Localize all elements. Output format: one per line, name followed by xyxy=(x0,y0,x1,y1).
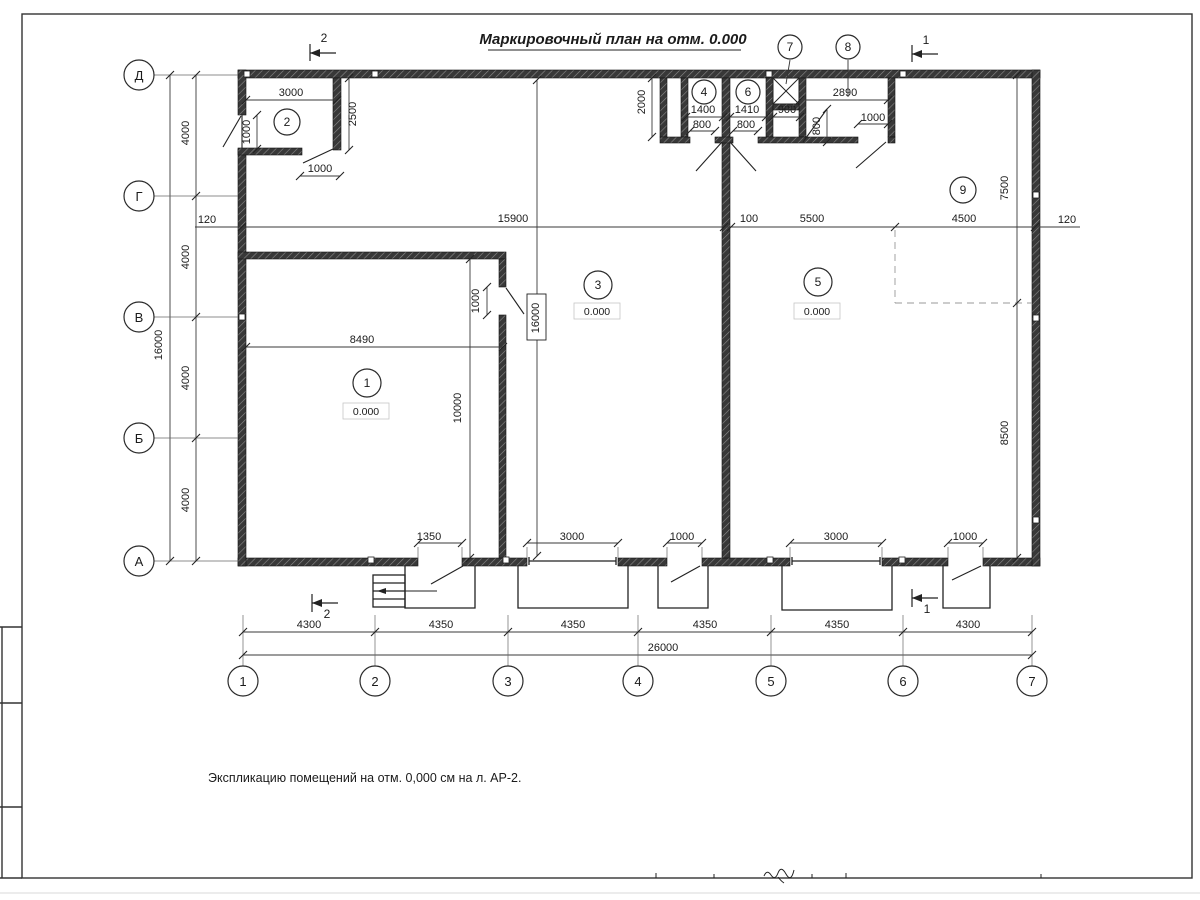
floor-plan-drawing: Маркировочный план на отм. 0.000 xyxy=(0,0,1200,900)
row-axis-label: В xyxy=(135,310,144,325)
section-number: 2 xyxy=(324,607,331,621)
section-mark-2-top: 2 xyxy=(310,31,336,61)
door-room4 xyxy=(696,142,722,171)
dim-label: 10000 xyxy=(452,393,464,424)
dim-label: 4350 xyxy=(429,619,453,631)
room-number: 5 xyxy=(815,275,822,289)
door-entry-1350 xyxy=(431,566,463,584)
dim-label: 1000 xyxy=(953,531,977,543)
door-room6 xyxy=(730,142,756,171)
room-number: 9 xyxy=(960,183,967,197)
room-number: 6 xyxy=(745,85,752,99)
dim-label: 4000 xyxy=(180,488,192,512)
dim-label: 2500 xyxy=(347,102,359,126)
section-number: 1 xyxy=(924,602,931,616)
row-axis-label: Д xyxy=(135,68,144,83)
dim-label: 4350 xyxy=(561,619,585,631)
dim-label: 1000 xyxy=(470,289,482,313)
section-mark-1-bottom: 1 xyxy=(912,589,938,616)
walls xyxy=(238,70,1040,566)
room-number: 2 xyxy=(284,115,291,129)
room-number: 7 xyxy=(787,40,794,54)
room-number: 8 xyxy=(845,40,852,54)
wall-room2-right xyxy=(333,78,341,150)
wall-room1-top xyxy=(238,252,506,259)
wall-topblock-bottom-seg xyxy=(660,137,690,143)
dimension-labels: 3000 1000 2890 1400 1410 900 800 800 100… xyxy=(153,87,1076,654)
dim-label: 15900 xyxy=(498,213,529,225)
wall-topblock-bottom-seg xyxy=(758,137,858,143)
wall-room1-right-seg xyxy=(499,315,506,558)
door-room2-interior xyxy=(303,149,333,163)
room-number: 1 xyxy=(364,376,371,390)
section-mark-2-bottom: 2 xyxy=(312,594,338,621)
dim-label: 1350 xyxy=(417,531,441,543)
room-number: 4 xyxy=(701,85,708,99)
dim-label: 100 xyxy=(740,213,758,225)
dim-label: 800 xyxy=(693,119,711,131)
wall-topblock-bottom-seg xyxy=(888,137,895,143)
wall-tie-marks xyxy=(239,71,1039,563)
boxed-dimension: 16000 xyxy=(527,294,546,340)
door-entry-right xyxy=(952,566,981,580)
porches xyxy=(405,566,990,610)
wall-room6-right xyxy=(766,78,773,137)
wall-room2-bottom xyxy=(238,148,302,155)
dim-label: 1410 xyxy=(735,104,759,116)
signature-marks xyxy=(656,869,1041,883)
wall-topblock-right xyxy=(888,78,895,137)
wall-top xyxy=(238,70,1040,78)
dim-label: 4350 xyxy=(693,619,717,631)
dim-label: 800 xyxy=(737,119,755,131)
axis-markers-rows: Д Г В Б А xyxy=(124,60,154,576)
row-axis-label: Г xyxy=(135,189,142,204)
wall-room1-right-seg xyxy=(499,259,506,287)
col-axis-label: 7 xyxy=(1028,674,1035,689)
dim-label: 120 xyxy=(1058,214,1076,226)
dim-label: 4000 xyxy=(180,245,192,269)
room-markers: 1 2 3 4 5 6 7 8 9 xyxy=(274,35,976,397)
dimension-ticks xyxy=(166,71,1039,659)
dim-label: 4000 xyxy=(180,121,192,145)
wall-bottom-seg xyxy=(882,558,948,566)
doors xyxy=(223,109,981,584)
col-axis-label: 4 xyxy=(634,674,641,689)
wall-left-seg xyxy=(238,149,246,566)
dim-label: 5500 xyxy=(800,213,824,225)
elevation-labels: 0.000 0.000 0.000 xyxy=(343,303,840,419)
wall-bottom-seg xyxy=(702,558,790,566)
door-entry-mid xyxy=(671,566,700,582)
dim-label: 7500 xyxy=(999,176,1011,200)
dim-label: 3000 xyxy=(279,87,303,99)
drawing-sheet: Маркировочный план на отм. 0.000 xyxy=(0,0,1200,900)
dim-label: 4300 xyxy=(956,619,980,631)
dim-label: 4300 xyxy=(297,619,321,631)
dim-label: 4350 xyxy=(825,619,849,631)
dim-label: 1000 xyxy=(861,112,885,124)
row-axis-label: Б xyxy=(135,431,144,446)
door-room1 xyxy=(506,288,524,314)
dim-label: 26000 xyxy=(648,642,679,654)
stairs xyxy=(373,575,437,607)
dim-label: 2890 xyxy=(833,87,857,99)
section-number: 2 xyxy=(321,31,328,45)
stairs-direction-arrow xyxy=(377,588,386,594)
dim-label: 3000 xyxy=(824,531,848,543)
dim-label: 8490 xyxy=(350,334,374,346)
wall-bottom-seg xyxy=(238,558,418,566)
row-axis-label: А xyxy=(135,554,144,569)
door-room2-exterior xyxy=(223,116,241,147)
elevation-label: 0.000 xyxy=(584,306,610,318)
elevation-label: 0.000 xyxy=(353,406,379,418)
wall-center xyxy=(722,78,730,558)
dim-label: 16000 xyxy=(153,330,165,361)
dim-label: 800 xyxy=(811,117,823,135)
dim-label: 1000 xyxy=(670,531,694,543)
col-axis-label: 6 xyxy=(899,674,906,689)
axis-markers-cols: 1 2 3 4 5 6 7 xyxy=(228,666,1047,696)
section-mark-1-top: 1 xyxy=(912,33,938,62)
dim-label: 1000 xyxy=(308,163,332,175)
dim-label: 120 xyxy=(198,214,216,226)
zone-boundary-dashed xyxy=(895,230,1032,303)
footnote: Экспликацию помещений на отм. 0,000 см н… xyxy=(208,771,521,785)
drawing-title: Маркировочный план на отм. 0.000 xyxy=(479,31,747,48)
dim-label: 900 xyxy=(778,104,796,116)
wall-shaft-right xyxy=(799,78,806,137)
dim-label: 1400 xyxy=(691,104,715,116)
wall-bottom-seg xyxy=(983,558,1040,566)
col-axis-label: 3 xyxy=(504,674,511,689)
dim-label: 3000 xyxy=(560,531,584,543)
dim-label: 1000 xyxy=(241,120,253,144)
dim-label: 16000 xyxy=(530,303,542,334)
dim-label: 4000 xyxy=(180,366,192,390)
room-number: 3 xyxy=(595,278,602,292)
dimension-lines xyxy=(154,75,1080,666)
dim-label: 2000 xyxy=(636,90,648,114)
wall-bottom-seg xyxy=(618,558,667,566)
door-store xyxy=(856,142,886,168)
wall-room4-left xyxy=(681,78,688,137)
col-axis-label: 1 xyxy=(239,674,246,689)
col-axis-label: 2 xyxy=(371,674,378,689)
dim-label: 4500 xyxy=(952,213,976,225)
elevation-label: 0.000 xyxy=(804,306,830,318)
section-number: 1 xyxy=(923,33,930,47)
dim-label: 8500 xyxy=(999,421,1011,445)
wall-topblock-left xyxy=(660,78,667,137)
wall-bottom-seg xyxy=(462,558,527,566)
col-axis-label: 5 xyxy=(767,674,774,689)
